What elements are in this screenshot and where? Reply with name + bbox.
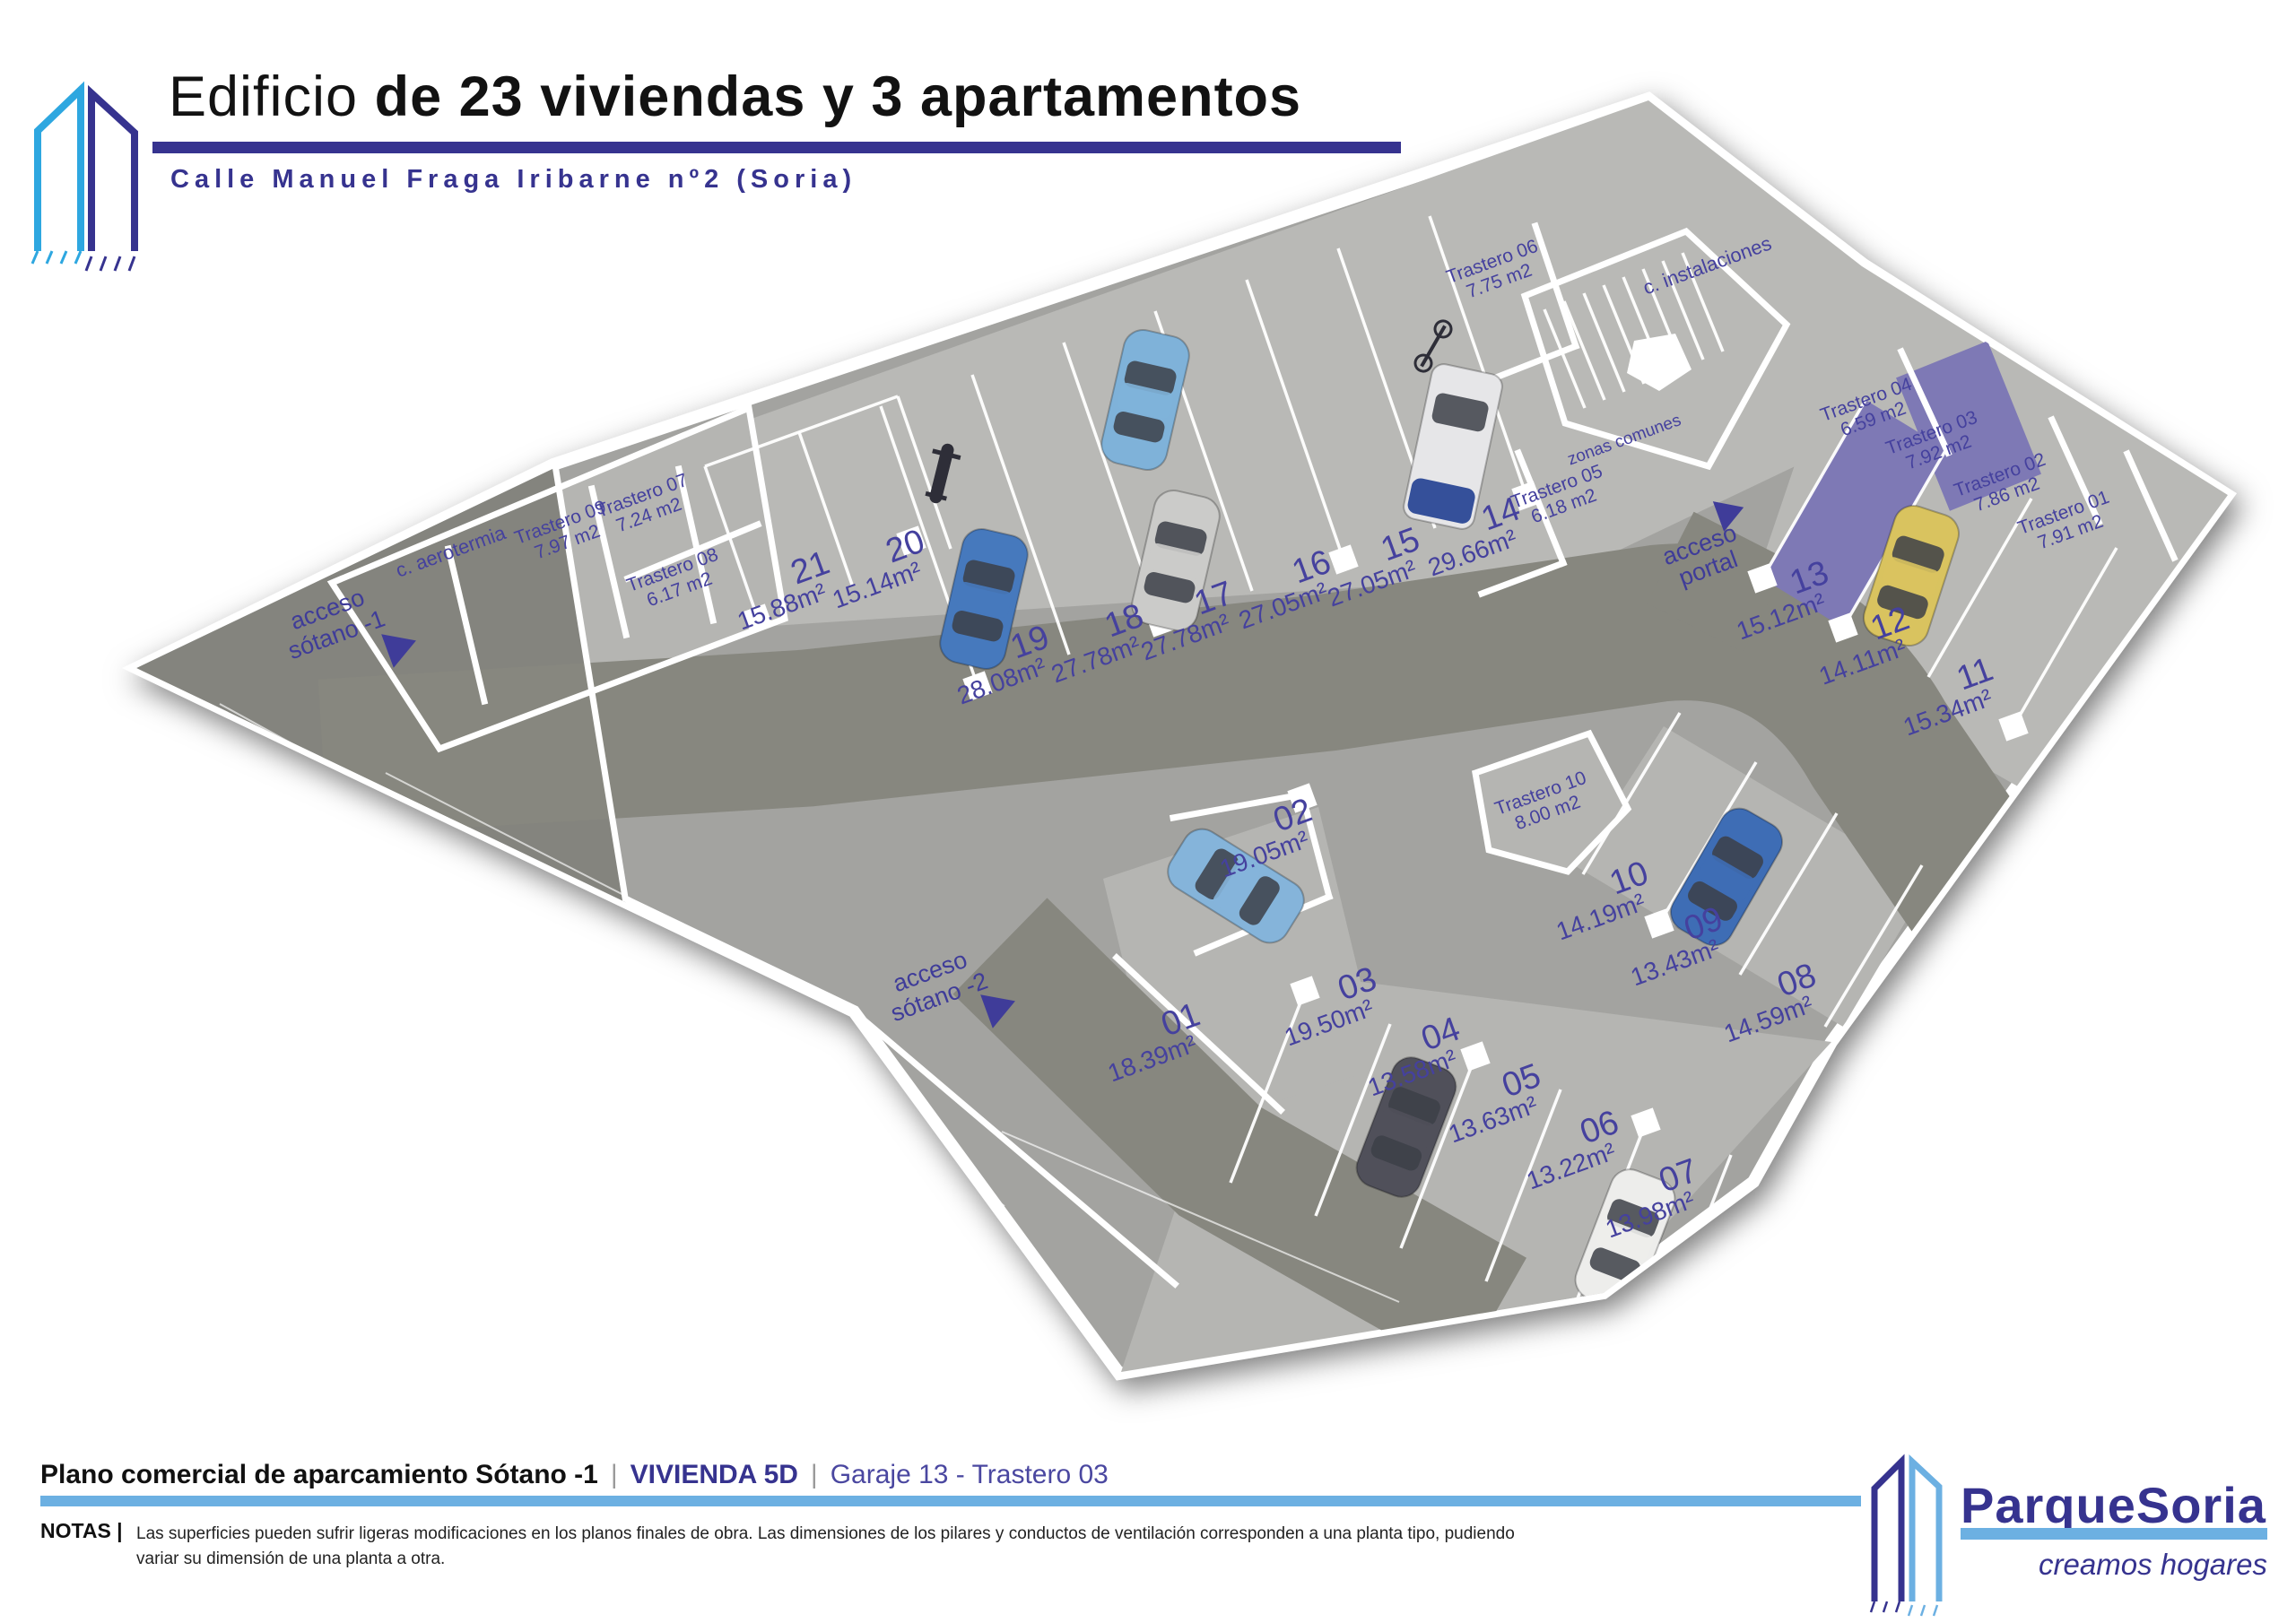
footer-vivienda: VIVIENDA 5D (631, 1460, 798, 1489)
page: 0118.39m² 0219.05m² 0319.50m² 0413.58m² … (0, 0, 2296, 1623)
address-subtitle: Calle Manuel Fraga Iribarne nº2 (Soria) (170, 165, 857, 195)
footer-separator: | (798, 1460, 831, 1489)
parquesoria-wordmark: ParqueSoria (1961, 1476, 2266, 1534)
footer-title-line: Plano comercial de aparcamiento Sótano -… (40, 1460, 1109, 1490)
title-rule (152, 142, 1401, 153)
page-title: Edificio de 23 viviendas y 3 apartamento… (169, 65, 1301, 129)
footer-plan-title: Plano comercial de aparcamiento Sótano -… (40, 1460, 598, 1489)
brand-tagline: creamos hogares (1961, 1548, 2267, 1582)
floorplan: 0118.39m² 0219.05m² 0319.50m² 0413.58m² … (0, 0, 2296, 1623)
title-bold: de 23 viviendas y 3 apartamentos (375, 65, 1301, 128)
parquesoria-logo-icon (1864, 1431, 1953, 1623)
notas-text: Las superficies pueden sufrir ligeras mo… (136, 1522, 1535, 1571)
footer-blue-bar (40, 1496, 1861, 1506)
notas-label: NOTAS | (40, 1519, 123, 1543)
brand-blue-bar (1961, 1528, 2267, 1540)
title-regular: Edificio (169, 65, 375, 128)
footer-separator: | (598, 1460, 631, 1489)
company-logo-icon (25, 16, 169, 290)
footer-garaje-trastero: Garaje 13 - Trastero 03 (831, 1460, 1109, 1489)
